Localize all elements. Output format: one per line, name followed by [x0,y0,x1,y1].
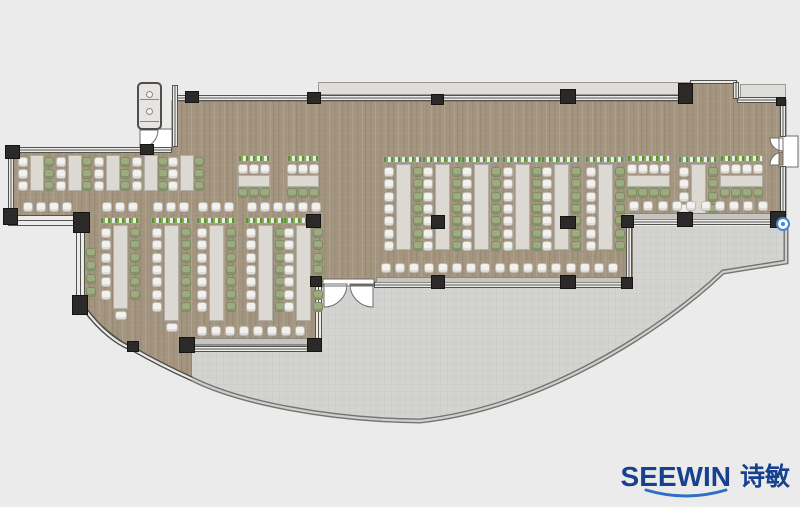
desk-planter [383,156,423,163]
chair [115,311,127,320]
chair [720,164,730,174]
desk-table [287,175,319,187]
desk-table [598,164,613,250]
chair [679,179,689,189]
bar-chair [672,201,682,211]
chair [284,240,294,250]
chair [197,253,207,263]
chair [152,265,162,275]
bar-chair [466,263,476,273]
bar-chair [629,201,639,211]
chair [586,229,596,239]
structural-column [431,275,445,289]
chair [753,188,763,198]
bar-chair [594,263,604,273]
bar-chair [438,263,448,273]
chair [542,167,552,177]
chair [247,202,257,212]
chair [130,277,140,287]
chair [168,169,178,179]
chair [649,188,659,198]
wall-segment [192,346,316,352]
chair [462,179,472,189]
chair [260,164,270,174]
chair [82,157,92,167]
chair [44,169,54,179]
chair [532,204,542,214]
bar-chair [658,201,668,211]
desk-planter [461,156,501,163]
chair [284,265,294,275]
chair [130,253,140,263]
chair [615,241,625,251]
wall-segment [76,226,85,302]
chair [462,204,472,214]
bar-chair [608,263,618,273]
bar-chair [62,202,72,212]
chair [226,277,236,287]
fixture-divider [140,99,159,100]
chair [742,164,752,174]
structural-column [3,208,18,225]
bar-counter [191,338,313,345]
chair [586,216,596,226]
chair [249,188,259,198]
wall-segment [780,101,786,137]
chair [287,188,297,198]
chair [298,188,308,198]
structural-column [140,144,154,155]
chair [615,192,625,202]
chair [649,164,659,174]
chair [491,179,501,189]
structural-column [677,212,693,227]
chair [462,229,472,239]
bar-counter [624,213,776,220]
chair [152,302,162,312]
structural-column [307,92,321,104]
chair [94,169,104,179]
desk-table [209,225,224,321]
desk-planter [720,155,763,162]
structural-column [307,338,322,352]
chair [246,228,256,238]
bar-chair [211,326,221,336]
desk-table [144,155,158,191]
chair [452,179,462,189]
bar-chair [643,201,653,211]
desk-planter [678,156,718,163]
floor-plan-canvas: SEEWIN 诗敏 [0,0,800,507]
chair [615,167,625,177]
chair [423,167,433,177]
bar-chair [566,263,576,273]
chair [168,181,178,191]
bar-chair [523,263,533,273]
chair [158,157,168,167]
desk-planter [151,217,191,224]
chair [181,240,191,250]
chair [18,169,28,179]
chair [491,192,501,202]
chair [82,181,92,191]
chair [284,228,294,238]
window-ledge [318,82,690,95]
stair-fixture [137,82,162,130]
chair [246,302,256,312]
chair [130,290,140,300]
chair [44,157,54,167]
bar-chair [495,263,505,273]
bar-chair [295,326,305,336]
chair [542,192,552,202]
chair [313,290,323,300]
chair [224,202,234,212]
chair [462,241,472,251]
chair [130,228,140,238]
desk-planter [287,155,319,162]
chair [462,192,472,202]
desk-planter [422,156,462,163]
desk-table [30,155,44,191]
bar-chair [281,326,291,336]
chair [181,302,191,312]
bar-counter [376,277,625,283]
chair [503,229,513,239]
chair [128,202,138,212]
chair [413,192,423,202]
chair [152,253,162,263]
chair [44,181,54,191]
chair [452,192,462,202]
chair [571,167,581,177]
wall-segment [733,82,739,99]
chair [249,164,259,174]
chair [238,188,248,198]
structural-column [678,83,693,104]
chair [532,216,542,226]
chair [638,188,648,198]
chair [586,241,596,251]
chair [94,181,104,191]
chair [226,240,236,250]
chair [246,253,256,263]
wall-segment [626,225,632,283]
chair [586,204,596,214]
desk-planter [100,217,140,224]
chair [720,188,730,198]
chair [284,277,294,287]
chair [198,202,208,212]
chair [181,265,191,275]
chair [197,290,207,300]
chair [152,228,162,238]
chair [152,290,162,300]
window-chair [86,261,96,271]
chair [166,323,178,332]
chair [423,192,433,202]
desk-table [296,225,311,321]
structural-column [72,295,88,315]
bar-chair [551,263,561,273]
chair [571,229,581,239]
chair [226,228,236,238]
chair [309,164,319,174]
chair [452,204,462,214]
chair [101,228,111,238]
chair [423,204,433,214]
chair [542,216,552,226]
structural-column [621,215,634,228]
bar-chair [758,201,768,211]
chair [211,202,221,212]
desk-table [106,155,120,191]
chair [532,241,542,251]
bar-chair [197,326,207,336]
chair [285,202,295,212]
chair [586,192,596,202]
chair [503,241,513,251]
chair [413,179,423,189]
chair [542,204,552,214]
chair [101,240,111,250]
chair [571,179,581,189]
chair [384,204,394,214]
chair [503,167,513,177]
chair [181,228,191,238]
chair [273,202,283,212]
chair [120,169,130,179]
chair [298,202,308,212]
desk-planter [245,217,285,224]
chair [413,167,423,177]
chair [168,157,178,167]
chair [313,240,323,250]
chair [82,169,92,179]
chair [660,188,670,198]
chair [130,265,140,275]
bar-chair [225,326,235,336]
chair [452,241,462,251]
chair [132,181,142,191]
chair [246,277,256,287]
chair [731,164,741,174]
bar-chair [267,326,277,336]
bar-chair [409,263,419,273]
chair [238,164,248,174]
chair [284,302,294,312]
structural-column [310,276,322,287]
chair [197,277,207,287]
chair [638,164,648,174]
chair [311,202,321,212]
chair [226,265,236,275]
chair [194,157,204,167]
chair [194,169,204,179]
chair [423,241,433,251]
chair [94,157,104,167]
chair [101,277,111,287]
chair [503,179,513,189]
bar-chair [253,326,263,336]
desk-planter [585,156,625,163]
chair [226,290,236,300]
chair [423,179,433,189]
chair [246,265,256,275]
structural-column [306,214,321,228]
desk-table [435,164,450,250]
chair [181,277,191,287]
chair [491,241,501,251]
desk-table [180,155,194,191]
chair [384,167,394,177]
bar-chair [729,201,739,211]
structural-column [431,215,445,229]
bar-chair [480,263,490,273]
chair [18,181,28,191]
structural-column [73,212,90,233]
wall-segment [690,80,737,84]
chair [384,179,394,189]
chair [101,253,111,263]
chair [309,188,319,198]
chair [532,167,542,177]
brand-logo-swoosh-icon [643,488,729,500]
structural-column [127,341,139,352]
chair [452,229,462,239]
chair [115,202,125,212]
chair [542,179,552,189]
chair [742,188,752,198]
chair [452,167,462,177]
viewpoint-marker [776,217,790,231]
bar-chair [239,326,249,336]
chair [102,202,112,212]
chair [660,164,670,174]
structural-column [560,89,576,104]
chair [260,202,270,212]
desk-planter [541,156,581,163]
chair [542,241,552,251]
bar-chair [743,201,753,211]
chair [313,228,323,238]
chair [152,240,162,250]
bar-chair [424,263,434,273]
bar-chair [395,263,405,273]
chair [571,192,581,202]
structural-column [5,145,20,159]
chair [298,164,308,174]
chair [708,167,718,177]
chair [413,204,423,214]
bar-chair [686,201,696,211]
chair [384,241,394,251]
chair [284,290,294,300]
bar-chair [580,263,590,273]
chair [413,229,423,239]
chair [384,192,394,202]
bar-chair [49,202,59,212]
structural-column [431,94,444,105]
desk-table [554,164,569,250]
bar-chair [381,263,391,273]
chair [181,253,191,263]
structural-column [179,337,195,353]
chair [384,229,394,239]
chair [571,241,581,251]
chair [423,229,433,239]
desk-planter [196,217,236,224]
brand-logo: SEEWIN 诗敏 [621,463,790,491]
brand-logo-wordmark: SEEWIN [621,463,731,491]
chair [384,216,394,226]
chair [226,302,236,312]
chair [708,179,718,189]
chair [532,229,542,239]
desk-table [258,225,273,321]
structural-column [185,91,199,103]
chair [413,216,423,226]
chair [197,228,207,238]
chair [679,167,689,177]
chair [101,290,111,300]
chair [627,188,637,198]
fixture-knob [146,108,153,115]
chair [101,265,111,275]
chair [542,229,552,239]
desk-table [720,175,763,187]
bar-chair [23,202,33,212]
chair [56,181,66,191]
chair [615,229,625,239]
structural-column [560,275,576,289]
chair [132,157,142,167]
chair [284,253,294,263]
chair [179,202,189,212]
desk-table [238,175,270,187]
desk-planter [238,155,270,162]
desk-planter [627,155,670,162]
chair [120,157,130,167]
chair [313,253,323,263]
chair [194,181,204,191]
chair [56,157,66,167]
desk-table [515,164,530,250]
chair [571,204,581,214]
chair [491,216,501,226]
chair [197,240,207,250]
chair [153,202,163,212]
wall-segment [780,166,786,214]
chair [130,240,140,250]
chair [503,192,513,202]
desk-table [396,164,411,250]
bar-chair [509,263,519,273]
window-chair [86,274,96,284]
bar-chair [452,263,462,273]
chair [197,265,207,275]
chair [181,290,191,300]
chair [152,277,162,287]
structural-column [621,277,633,289]
chair [166,202,176,212]
desk-table [627,175,670,187]
bar-chair [701,201,711,211]
chair [246,240,256,250]
chair [56,169,66,179]
chair [413,241,423,251]
brand-logo-chinese: 诗敏 [740,465,790,490]
